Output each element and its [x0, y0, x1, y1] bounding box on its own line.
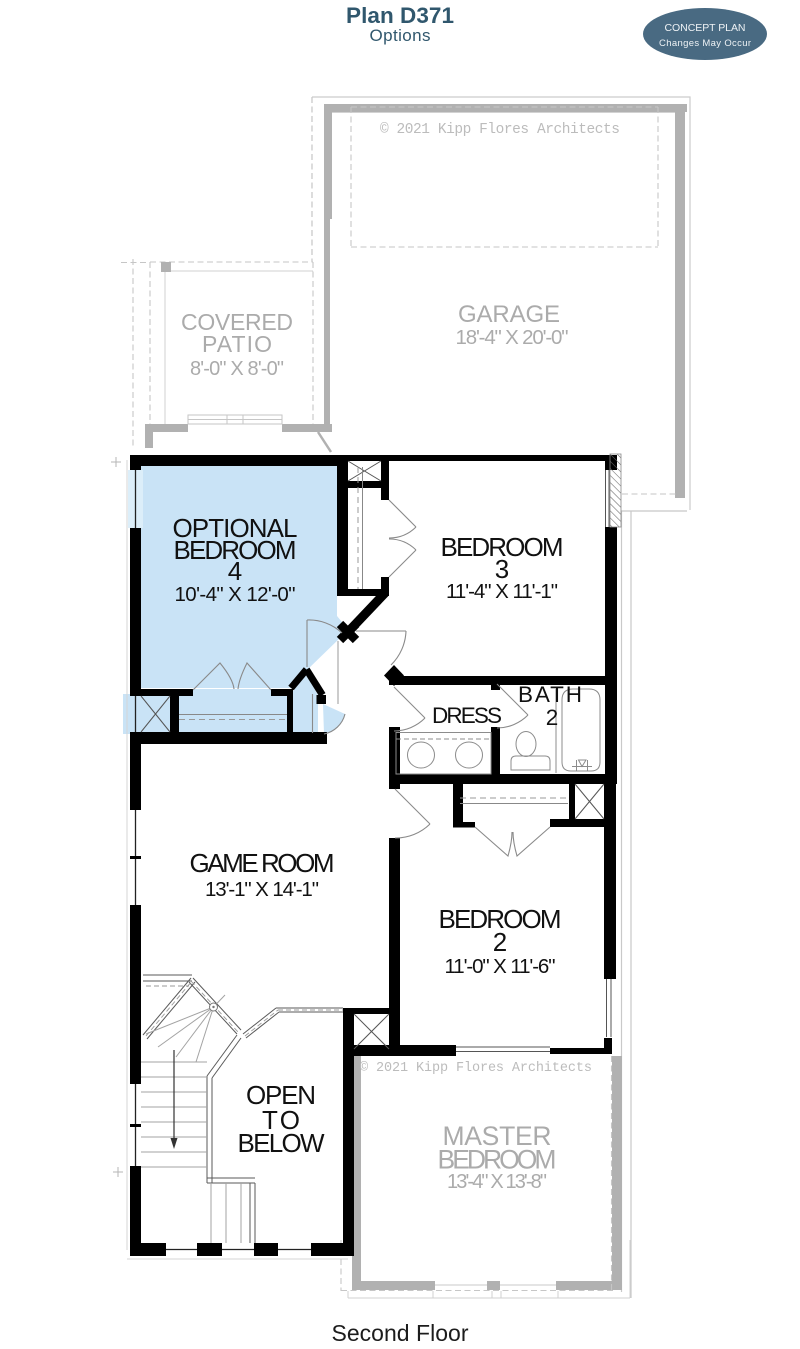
svg-text:DRESS: DRESS: [432, 703, 502, 728]
svg-text:CONCEPT PLAN: CONCEPT PLAN: [665, 22, 746, 34]
svg-text:18'-4" X 20'-0": 18'-4" X 20'-0": [456, 326, 569, 349]
svg-text:8'-0" X 8'-0": 8'-0" X 8'-0": [190, 358, 284, 380]
svg-text:4: 4: [228, 556, 242, 586]
svg-text:© 2021 Kipp Flores Architects: © 2021 Kipp Flores Architects: [380, 122, 620, 138]
svg-text:2: 2: [546, 705, 559, 730]
svg-text:11'-0" X 11'-6": 11'-0" X 11'-6": [445, 955, 556, 978]
svg-text:11'-4" X 11'-1": 11'-4" X 11'-1": [446, 580, 558, 603]
svg-text:GARAGE: GARAGE: [458, 301, 560, 328]
svg-text:BATH: BATH: [518, 682, 582, 707]
svg-text:© 2021 Kipp Flores Architects: © 2021 Kipp Flores Architects: [360, 1061, 592, 1076]
svg-text:Plan D371: Plan D371: [346, 3, 454, 28]
svg-text:BELOW: BELOW: [238, 1128, 325, 1158]
svg-text:Options: Options: [370, 26, 431, 45]
svg-text:10'-4" X 12'-0": 10'-4" X 12'-0": [175, 583, 296, 606]
svg-text:13'-4" X 13'-8": 13'-4" X 13'-8": [447, 1171, 547, 1193]
svg-text:Changes May Occur: Changes May Occur: [659, 38, 751, 49]
svg-text:GAME ROOM: GAME ROOM: [190, 848, 335, 878]
svg-text:PATIO: PATIO: [202, 331, 272, 357]
svg-text:13'-1" X 14'-1": 13'-1" X 14'-1": [205, 878, 319, 901]
svg-text:2: 2: [493, 927, 507, 957]
svg-text:Second Floor: Second Floor: [332, 1320, 469, 1346]
svg-text:BEDROOM: BEDROOM: [438, 1145, 557, 1175]
